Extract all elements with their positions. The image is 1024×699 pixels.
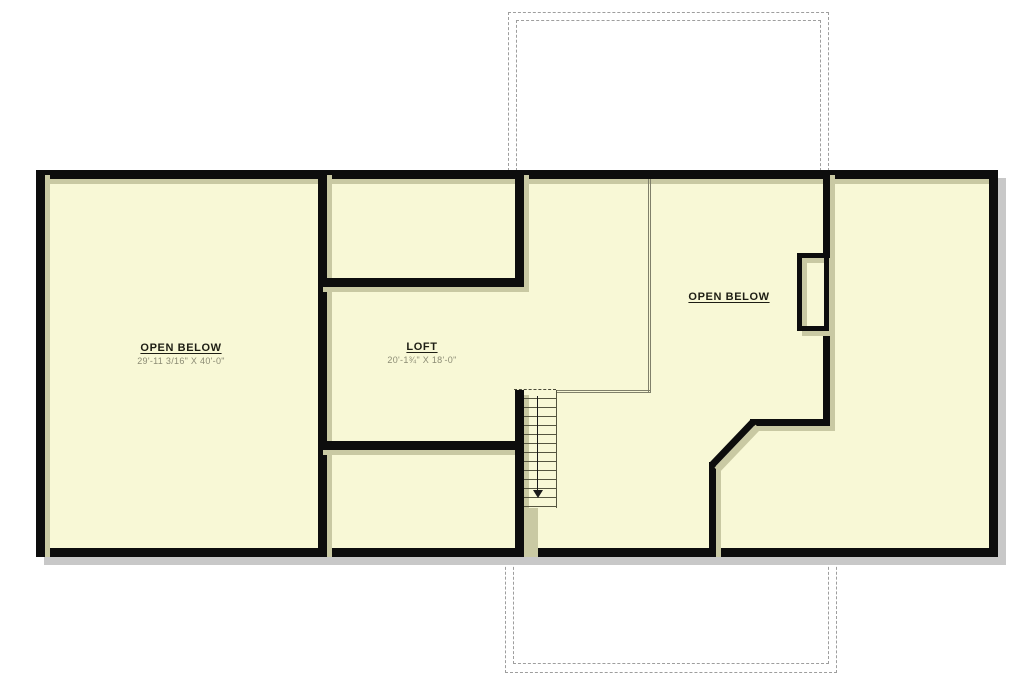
wall-right-room-horizontal	[750, 419, 830, 426]
room-name: LOFT	[387, 341, 456, 353]
wall-right-room-lower	[709, 462, 716, 557]
floor-plan-canvas: OPEN BELOW 29'-11 3/16" X 40'-0" LOFT 20…	[0, 0, 1024, 699]
stair-arrow-shaft	[537, 396, 538, 492]
room-name: OPEN BELOW	[137, 342, 225, 354]
wall-outer-right	[989, 170, 998, 557]
wall-lower-closet-top	[318, 441, 524, 450]
stair-cut-dashed-line	[514, 389, 556, 390]
room-dimensions: 20'-1¾" X 18'-0"	[387, 355, 456, 365]
room-label-open-below-right: OPEN BELOW	[688, 291, 769, 303]
staircase	[524, 390, 557, 508]
wall-niche	[797, 253, 829, 331]
stair-wall-shading	[524, 508, 538, 557]
stair-down-arrow-icon	[533, 490, 543, 498]
floor-plan: OPEN BELOW 29'-11 3/16" X 40'-0" LOFT 20…	[36, 170, 998, 557]
roof-outline-bottom-inner	[513, 557, 829, 664]
wall-upper-closet-bottom	[318, 278, 524, 287]
room-label-open-below-left: OPEN BELOW 29'-11 3/16" X 40'-0"	[137, 342, 225, 366]
room-name: OPEN BELOW	[688, 291, 769, 303]
wall-upper-closet-right	[515, 170, 524, 287]
opening-boundary-vertical-line	[648, 179, 651, 393]
room-dimensions: 29'-11 3/16" X 40'-0"	[137, 356, 225, 366]
roof-outline-top-inner	[516, 20, 821, 171]
room-label-loft: LOFT 20'-1¾" X 18'-0"	[387, 341, 456, 365]
wall-left-room-separator	[318, 170, 327, 557]
wall-outer-left	[36, 170, 45, 557]
wall-stair-left	[515, 390, 524, 557]
opening-boundary-horizontal-line	[556, 390, 651, 393]
